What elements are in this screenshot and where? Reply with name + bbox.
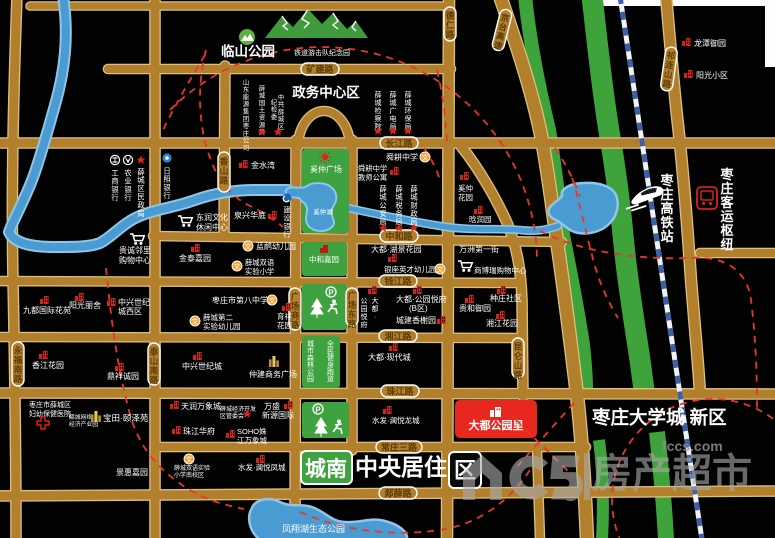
svg-text:商博瑞购物中心: 商博瑞购物中心 xyxy=(474,265,527,275)
svg-text:购物中心: 购物中心 xyxy=(119,255,151,265)
svg-text:阳光小区: 阳光小区 xyxy=(696,70,728,80)
svg-text:凤翔湖生态公园: 凤翔湖生态公园 xyxy=(282,523,345,534)
svg-text:中共薛城区: 中共薛城区 xyxy=(278,92,285,130)
svg-text:临山公园: 临山公园 xyxy=(221,43,275,59)
svg-text:中和路: 中和路 xyxy=(385,231,413,242)
svg-text:中央居住: 中央居住 xyxy=(355,454,447,480)
svg-text:钱江路: 钱江路 xyxy=(384,276,412,287)
svg-text:薛城国土资源局: 薛城国土资源局 xyxy=(259,83,266,136)
svg-text:舜耕中学: 舜耕中学 xyxy=(386,152,418,162)
svg-text:贵诚邻里: 贵诚邻里 xyxy=(119,245,151,255)
svg-text:休闲中心: 休闲中心 xyxy=(196,222,228,232)
svg-text:薛城经济开发: 薛城经济开发 xyxy=(220,405,256,413)
svg-text:枣庄客运枢纽: 枣庄客运枢纽 xyxy=(719,167,734,252)
svg-text:宝田·颐泽苑: 宝田·颐泽苑 xyxy=(103,413,149,423)
svg-text:薛城检察院: 薛城检察院 xyxy=(375,90,382,131)
svg-text:泰山南路: 泰山南路 xyxy=(149,347,159,386)
svg-text:香山路: 香山路 xyxy=(219,157,229,186)
svg-text:花园: 花园 xyxy=(458,192,473,202)
svg-text:阳光丽舍: 阳光丽舍 xyxy=(69,300,101,310)
svg-text:花园: 花园 xyxy=(277,320,292,330)
svg-text:水发·澜悦龙城: 水发·澜悦龙城 xyxy=(372,415,420,425)
svg-text:湘江路: 湘江路 xyxy=(384,331,412,342)
svg-text:金泰嘉园: 金泰嘉园 xyxy=(179,253,211,263)
svg-text:枣庄大学城 新区: 枣庄大学城 新区 xyxy=(591,407,727,428)
svg-text:贵和御园: 贵和御园 xyxy=(459,303,491,313)
svg-text:常庄三路: 常庄三路 xyxy=(381,442,418,453)
svg-text:日照银行: 日照银行 xyxy=(163,166,171,200)
svg-text:龙潭御园: 龙潭御园 xyxy=(694,38,726,48)
svg-text:新源国际: 新源国际 xyxy=(262,410,294,420)
svg-text:种庄社区: 种庄社区 xyxy=(490,293,522,303)
svg-text:珠江华府: 珠江华府 xyxy=(183,426,215,436)
svg-text:香江花园: 香江花园 xyxy=(32,360,64,370)
svg-text:九都国际花苑: 九都国际花苑 xyxy=(23,305,71,315)
svg-text:政务中心区: 政务中心区 xyxy=(292,84,360,100)
svg-text:城市森林公园: 城市森林公园 xyxy=(307,340,315,383)
svg-text:城南: 城南 xyxy=(305,457,347,481)
svg-text:建设银行: 建设银行 xyxy=(283,205,291,239)
svg-text:昆仑山路: 昆仑山路 xyxy=(514,342,523,381)
svg-text:P: P xyxy=(328,289,334,298)
svg-text:泉兴华庭: 泉兴华庭 xyxy=(234,210,266,220)
svg-text:薛城双语: 薛城双语 xyxy=(245,258,274,267)
svg-text:大都·公园悦府: 大都·公园悦府 xyxy=(396,294,447,304)
svg-text:纪检委: 纪检委 xyxy=(271,97,278,121)
svg-text:景惠嘉园: 景惠嘉园 xyxy=(116,467,148,477)
svg-text:薛城财政局: 薛城财政局 xyxy=(410,184,418,226)
svg-text:薛城公安局: 薛城公安局 xyxy=(379,184,387,226)
svg-text:育祥: 育祥 xyxy=(277,311,292,321)
svg-text:城西区: 城西区 xyxy=(118,307,142,316)
svg-text:中兴世纪: 中兴世纪 xyxy=(118,297,150,307)
svg-text:东润文化: 东润文化 xyxy=(196,212,228,222)
svg-text:薛城税务局: 薛城税务局 xyxy=(395,184,403,226)
svg-text:区管委会: 区管委会 xyxy=(220,412,244,420)
svg-text:薛城区民政局: 薛城区民政局 xyxy=(137,167,145,218)
svg-text:珠江路: 珠江路 xyxy=(386,386,414,397)
svg-text:万盛: 万盛 xyxy=(264,401,280,411)
svg-text:SOHO姝: SOHO姝 xyxy=(237,426,267,436)
svg-text:城建香榭园: 城建香榭园 xyxy=(396,315,436,325)
svg-text:实验小学: 实验小学 xyxy=(245,267,274,276)
svg-text:经济产业园: 经济产业园 xyxy=(69,420,98,428)
svg-text:蓝鸸幼儿园: 蓝鸸幼儿园 xyxy=(256,241,296,251)
svg-text:薛城第二: 薛城第二 xyxy=(203,312,233,322)
svg-text:万洲第一街: 万洲第一街 xyxy=(459,244,499,254)
svg-text:广场东路: 广场东路 xyxy=(348,291,357,330)
svg-text:P: P xyxy=(315,406,321,415)
svg-text:中兴世纪城: 中兴世纪城 xyxy=(182,361,222,371)
svg-text:天润万象城: 天润万象城 xyxy=(181,401,221,411)
svg-text:枣庄高铁站: 枣庄高铁站 xyxy=(659,173,674,244)
svg-text:矿建路: 矿建路 xyxy=(306,64,334,75)
svg-text:德仁路: 德仁路 xyxy=(446,11,455,40)
svg-text:中和嘉园: 中和嘉园 xyxy=(309,254,339,264)
svg-text:晗润园: 晗润园 xyxy=(469,214,492,224)
svg-text:实验幼儿园: 实验幼儿园 xyxy=(203,321,241,331)
svg-text:房产超市: 房产超市 xyxy=(592,452,752,496)
svg-text:工商银行: 工商银行 xyxy=(111,168,119,202)
svg-text:奚仲广场: 奚仲广场 xyxy=(310,164,342,174)
svg-text:妇幼保健医院: 妇幼保健医院 xyxy=(29,409,71,418)
svg-text:金水湾: 金水湾 xyxy=(251,160,275,170)
svg-text:枣庄市第八中学: 枣庄市第八中学 xyxy=(212,295,268,305)
svg-text:大都·现代城: 大都·现代城 xyxy=(368,352,411,362)
svg-text:长江路: 长江路 xyxy=(385,138,413,149)
svg-text:奚仲: 奚仲 xyxy=(458,183,473,193)
svg-text:小学南校区: 小学南校区 xyxy=(174,471,204,479)
svg-text:教师公寓: 教师公寓 xyxy=(358,173,387,182)
svg-text:郯薛路: 郯薛路 xyxy=(384,488,412,499)
svg-text:薛城广电局: 薛城广电局 xyxy=(390,90,397,131)
svg-text:薛城网络: 薛城网络 xyxy=(69,413,92,421)
svg-text:全民健身跑道: 全民健身跑道 xyxy=(327,339,335,383)
svg-text:农业银行: 农业银行 xyxy=(124,168,132,202)
svg-text:(B区): (B区) xyxy=(409,304,428,313)
svg-text:江万象城: 江万象城 xyxy=(237,435,267,445)
svg-text:薛城环保局: 薛城环保局 xyxy=(405,90,412,131)
svg-text:奚仲湖: 奚仲湖 xyxy=(313,207,333,216)
svg-text:枣庄市薛城区: 枣庄市薛城区 xyxy=(29,400,71,409)
svg-text:山东能源集团枣庄公司: 山东能源集团枣庄公司 xyxy=(243,77,250,152)
svg-text:铁道游击队纪念园: 铁道游击队纪念园 xyxy=(294,48,350,57)
svg-text:水发·澜悦凤城: 水发·澜悦凤城 xyxy=(238,462,286,472)
svg-text:永福南路: 永福南路 xyxy=(13,346,23,385)
svg-text:大都公园里: 大都公园里 xyxy=(469,418,524,432)
svg-text:广场商路: 广场商路 xyxy=(291,292,300,331)
svg-text:大都·湖景花园: 大都·湖景花园 xyxy=(371,244,422,254)
svg-text:薛城双语实验: 薛城双语实验 xyxy=(174,464,210,472)
svg-text:银座英才幼儿园: 银座英才幼儿园 xyxy=(384,264,437,274)
svg-text:湘江花园: 湘江花园 xyxy=(486,318,518,328)
svg-text:鼎祥诚园: 鼎祥诚园 xyxy=(107,371,139,381)
svg-text:舜耕中学: 舜耕中学 xyxy=(358,164,387,173)
svg-text:仲建商务广场: 仲建商务广场 xyxy=(249,369,297,379)
